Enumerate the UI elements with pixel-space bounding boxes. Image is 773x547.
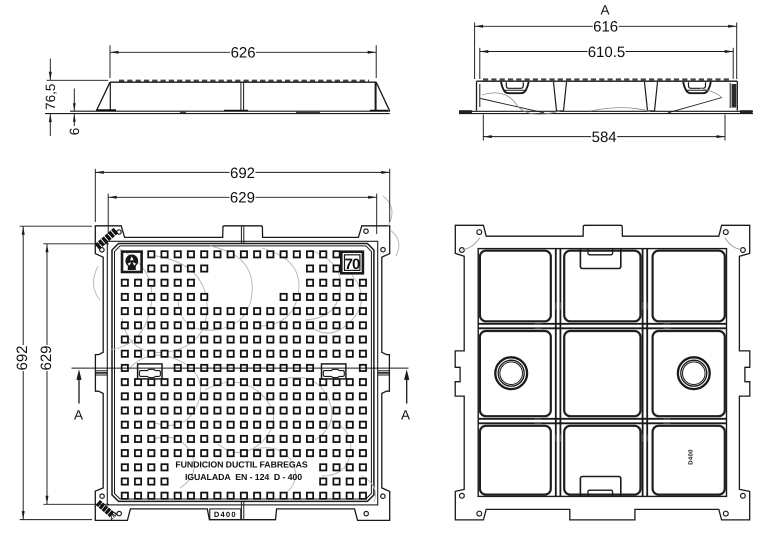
svg-text:A: A xyxy=(600,3,609,18)
svg-text:6: 6 xyxy=(67,128,82,136)
svg-text:692: 692 xyxy=(230,165,255,182)
svg-text:70: 70 xyxy=(345,256,360,273)
svg-text:IGUALADA EN - 124 D - 400: IGUALADA EN - 124 D - 400 xyxy=(185,472,302,482)
svg-text:610.5: 610.5 xyxy=(588,44,626,61)
svg-text:FUNDICION DUCTIL FABREGAS: FUNDICION DUCTIL FABREGAS xyxy=(175,459,307,469)
svg-text:D400: D400 xyxy=(688,449,695,465)
svg-text:626: 626 xyxy=(231,45,256,62)
svg-text:76,5: 76,5 xyxy=(43,84,58,110)
svg-text:629: 629 xyxy=(38,345,55,370)
svg-text:692: 692 xyxy=(14,345,31,370)
svg-text:584: 584 xyxy=(592,129,617,146)
svg-text:A: A xyxy=(74,408,83,423)
svg-text:D400: D400 xyxy=(214,510,237,519)
svg-text:616: 616 xyxy=(593,19,618,36)
svg-text:629: 629 xyxy=(230,190,255,207)
svg-text:A: A xyxy=(401,408,410,423)
